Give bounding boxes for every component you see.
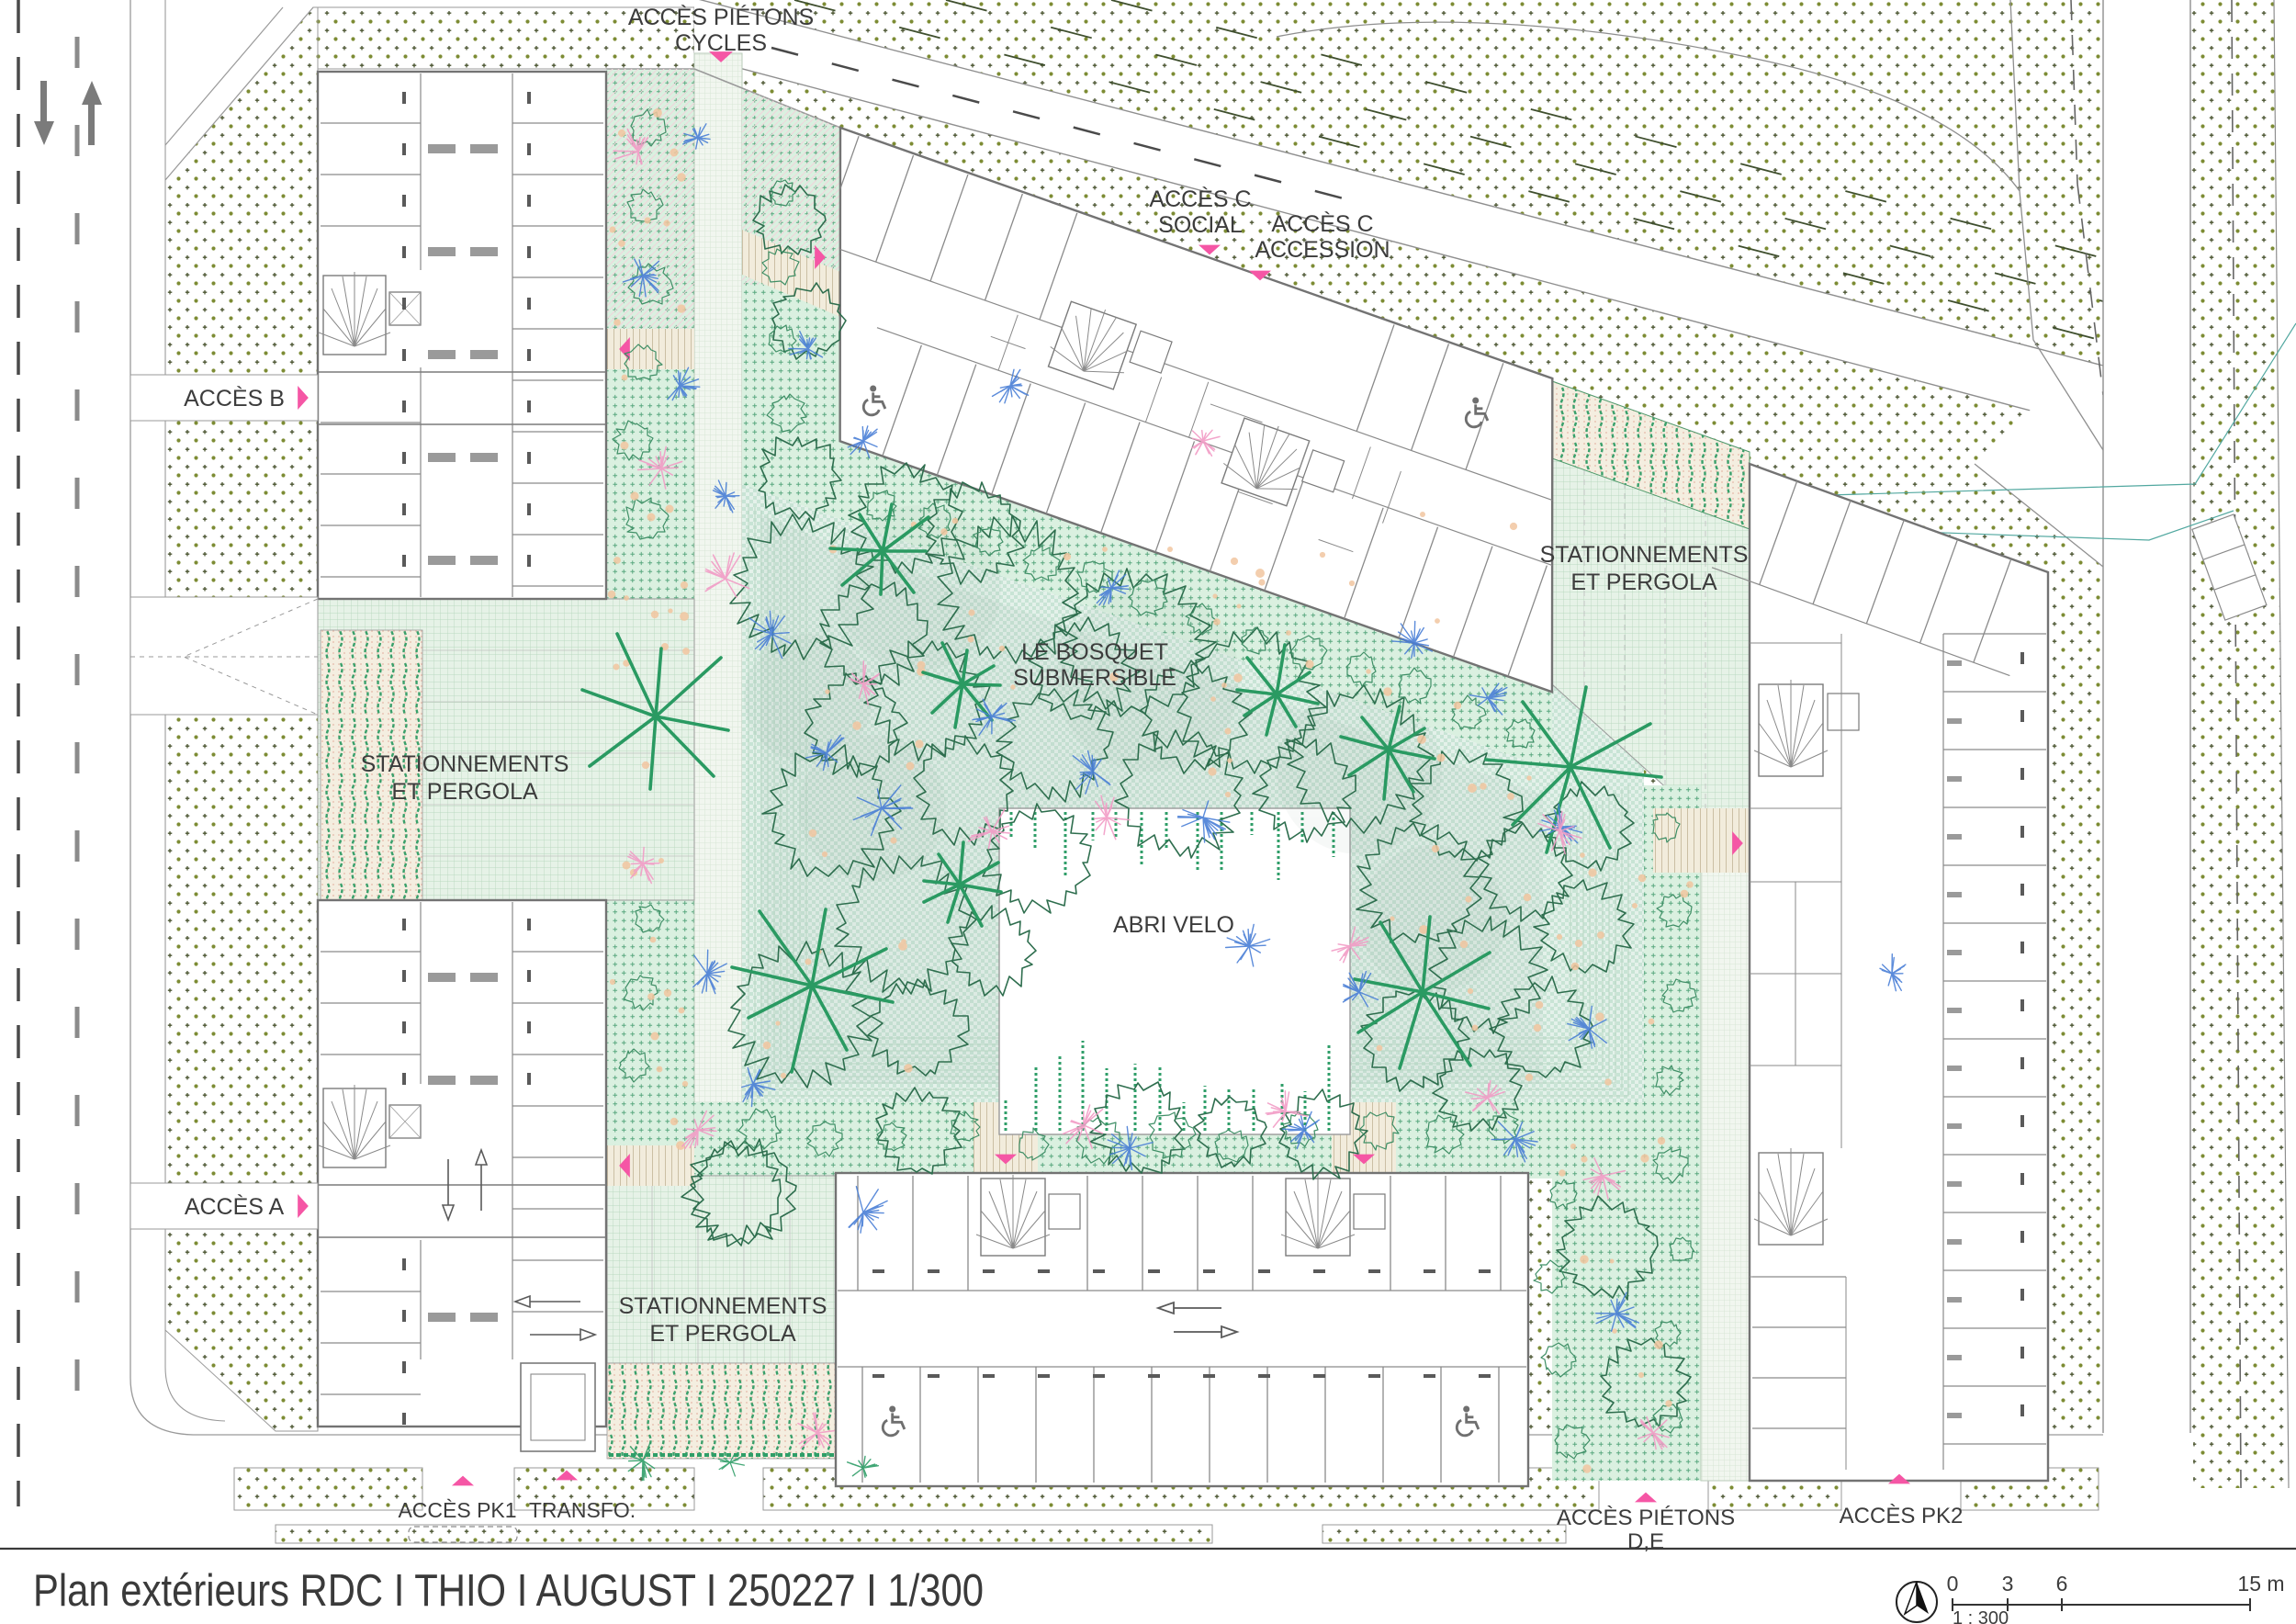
- svg-text:ET PERGOLA: ET PERGOLA: [649, 1321, 796, 1347]
- svg-text:1 : 300: 1 : 300: [1953, 1608, 2009, 1624]
- svg-text:CYCLES: CYCLES: [675, 30, 767, 56]
- svg-text:6: 6: [2056, 1572, 2068, 1596]
- svg-text:ET PERGOLA: ET PERGOLA: [391, 779, 538, 805]
- svg-text:15 m: 15 m: [2237, 1572, 2284, 1596]
- svg-text:ACCÈS C: ACCÈS C: [1271, 210, 1373, 237]
- svg-text:ET PERGOLA: ET PERGOLA: [1570, 570, 1717, 595]
- svg-text:ACCÈS A: ACCÈS A: [185, 1193, 285, 1220]
- svg-text:3: 3: [2002, 1572, 2014, 1596]
- svg-text:ACCÈS C: ACCÈS C: [1149, 186, 1251, 212]
- svg-text:ABRI VELO: ABRI VELO: [1113, 912, 1234, 938]
- svg-text:STATIONNEMENTS: STATIONNEMENTS: [619, 1293, 827, 1319]
- svg-text:ACCÈS PIÉTONS: ACCÈS PIÉTONS: [1557, 1506, 1735, 1530]
- svg-text:ACCÈS B: ACCÈS B: [184, 385, 285, 412]
- svg-text:0: 0: [1947, 1572, 1959, 1596]
- svg-text:STATIONNEMENTS: STATIONNEMENTS: [1540, 542, 1749, 568]
- svg-text:TRANSFO.: TRANSFO.: [529, 1498, 636, 1522]
- svg-text:ACCÈS PK1: ACCÈS PK1: [398, 1498, 516, 1522]
- svg-text:Plan extérieurs RDC I THIO I A: Plan extérieurs RDC I THIO I AUGUST I 25…: [33, 1566, 984, 1616]
- svg-text:ACCESSION: ACCESSION: [1255, 237, 1390, 263]
- svg-text:ACCÈS PIÉTONS: ACCÈS PIÉTONS: [628, 4, 814, 30]
- svg-text:SUBMERSIBLE: SUBMERSIBLE: [1013, 665, 1176, 691]
- svg-text:STATIONNEMENTS: STATIONNEMENTS: [361, 751, 569, 777]
- svg-text:SOCIAL: SOCIAL: [1158, 212, 1243, 238]
- svg-text:LE BOSQUET: LE BOSQUET: [1021, 639, 1168, 665]
- svg-text:D,E: D,E: [1627, 1529, 1664, 1554]
- svg-text:ACCÈS PK2: ACCÈS PK2: [1840, 1504, 1964, 1528]
